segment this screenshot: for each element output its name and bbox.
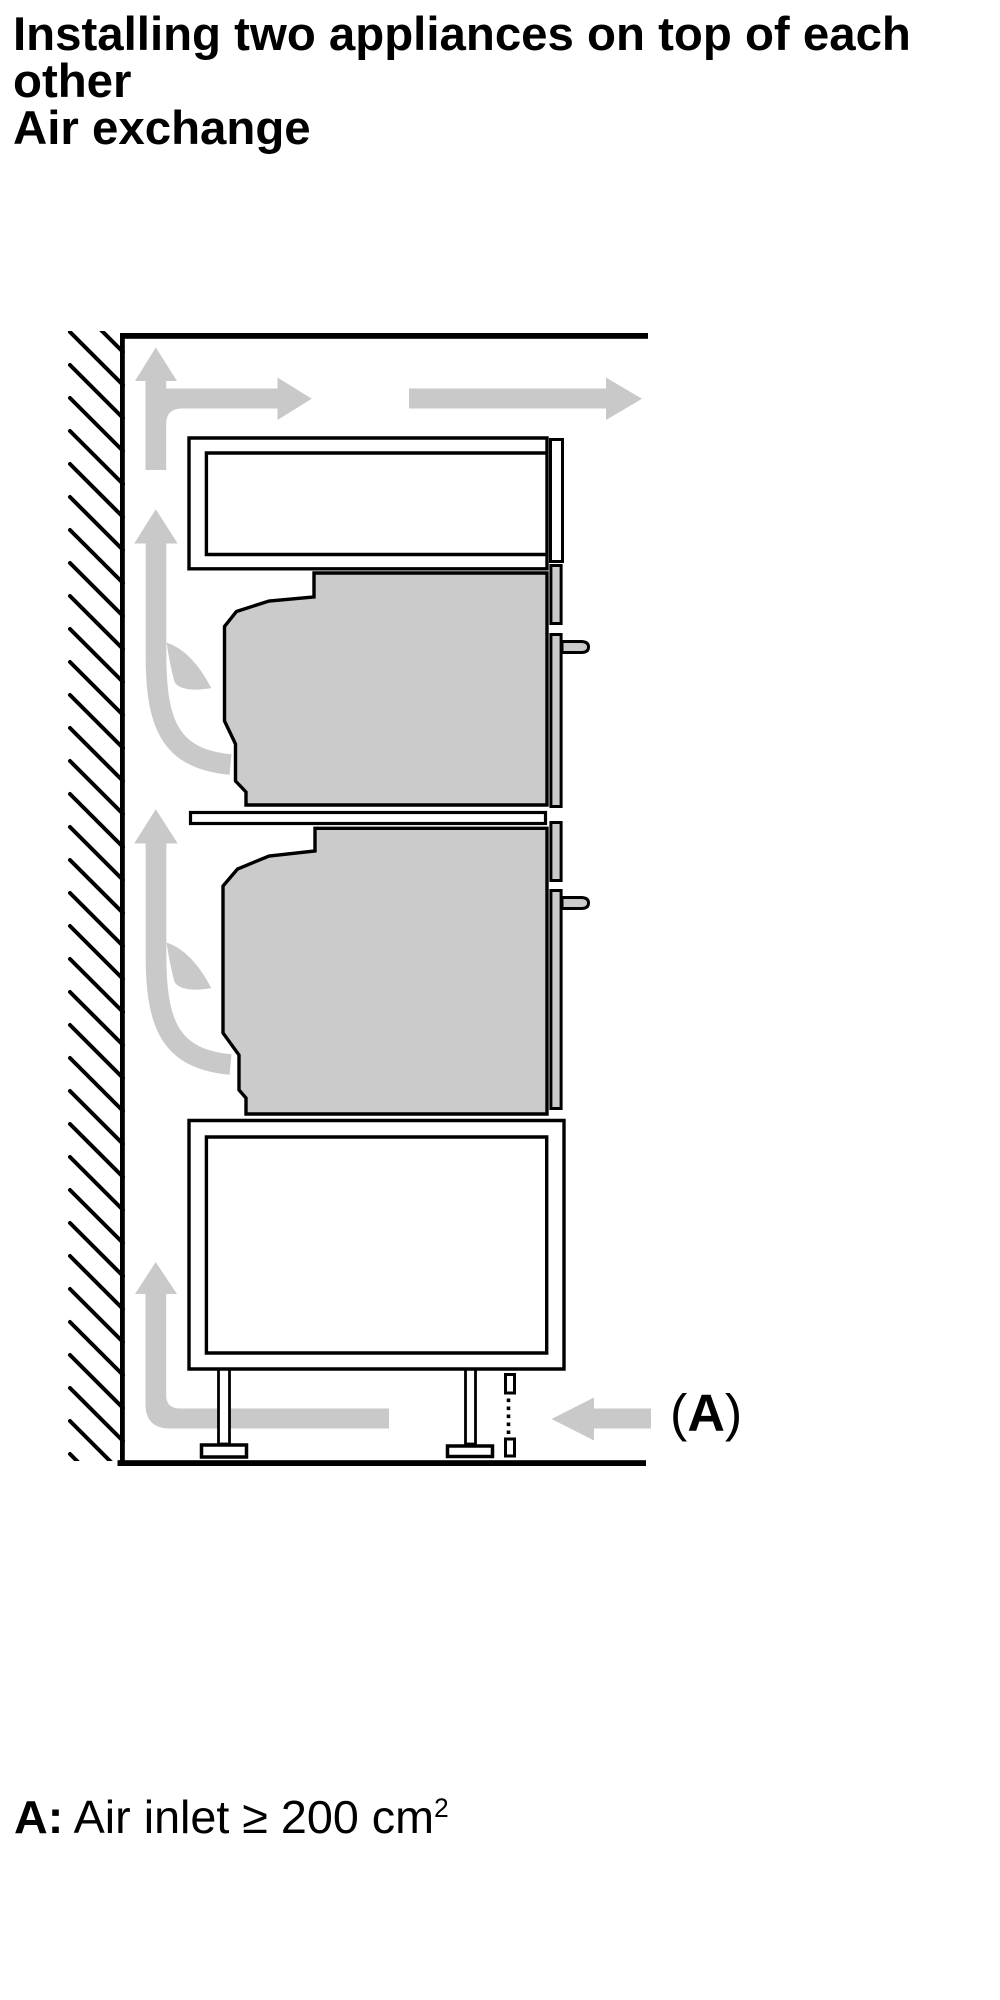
svg-text:Air exchange: Air exchange <box>13 102 311 155</box>
svg-text:A: Air inlet ≥ 200 cm2: A: Air inlet ≥ 200 cm2 <box>14 1791 449 1843</box>
svg-text:Installing two appliances on t: Installing two appliances on top of each <box>13 8 911 61</box>
svg-text:other: other <box>13 55 131 108</box>
svg-text:(A): (A) <box>670 1385 742 1443</box>
